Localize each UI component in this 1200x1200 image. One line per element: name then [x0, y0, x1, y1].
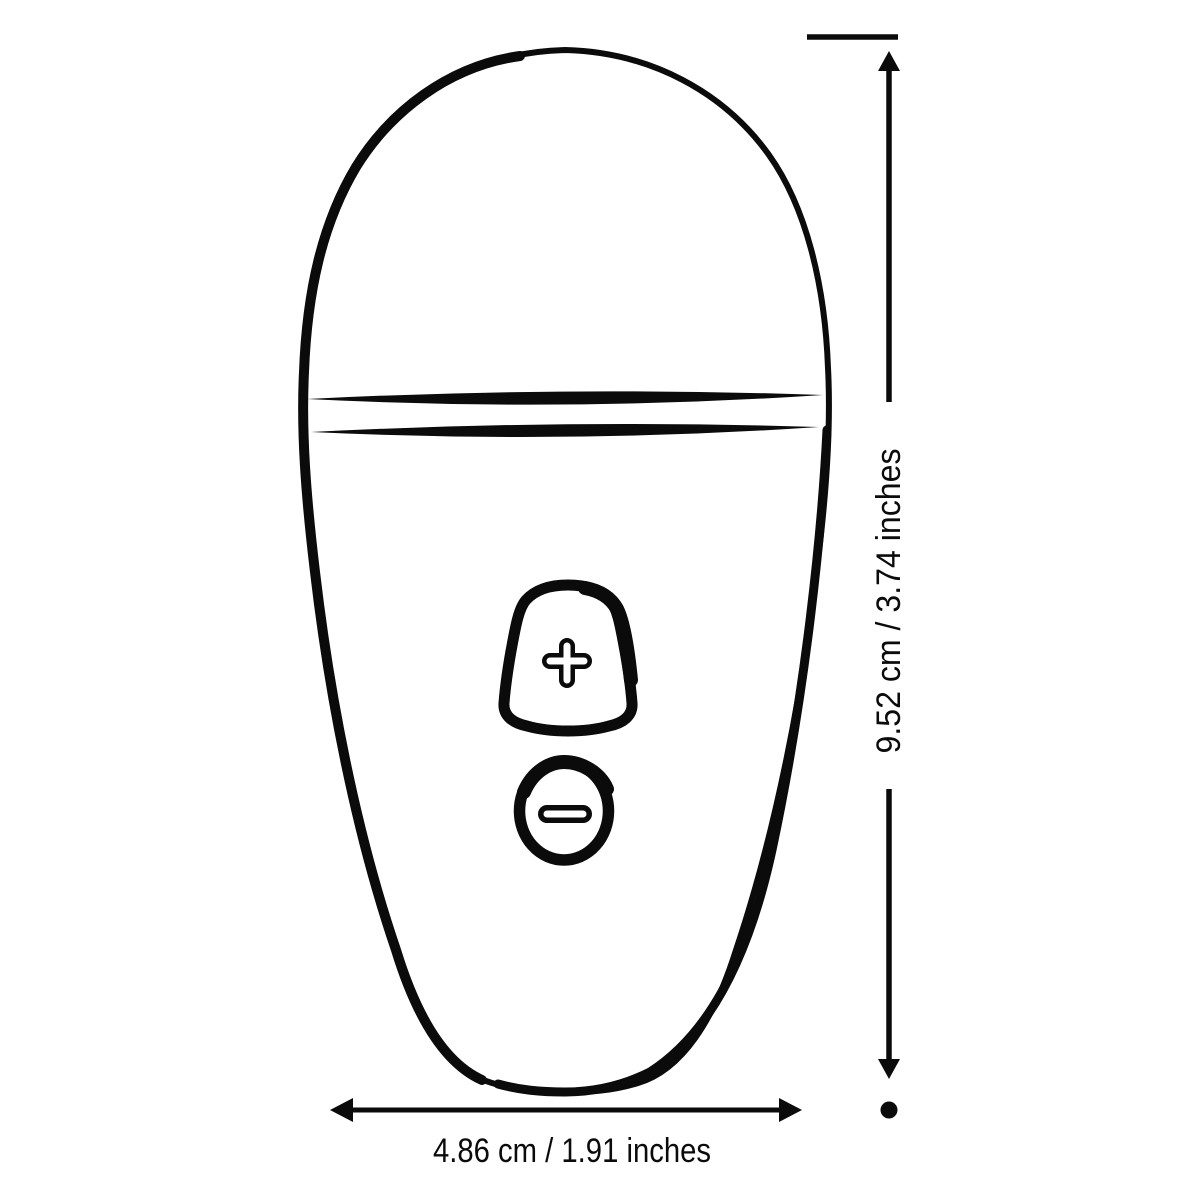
- diagram-canvas: 9.52 cm / 3.74 inches 4.86 cm / 1.91 inc…: [0, 0, 1200, 1200]
- width-dimension-label: 4.86 cm / 1.91 inches: [433, 1132, 711, 1170]
- height-arrow-down-icon: [878, 1059, 900, 1079]
- intensity-up-button: [504, 585, 632, 731]
- height-end-dot: [881, 1102, 898, 1119]
- dimension-diagram: 9.52 cm / 3.74 inches 4.86 cm / 1.91 inc…: [0, 0, 1200, 1200]
- width-arrow-right-icon: [779, 1098, 802, 1122]
- height-dimension-label: 9.52 cm / 3.74 inches: [870, 449, 908, 754]
- width-dimension: 4.86 cm / 1.91 inches: [330, 1098, 802, 1170]
- device-front-view: [302, 50, 829, 1092]
- minus-icon: [538, 805, 592, 823]
- height-dimension: 9.52 cm / 3.74 inches: [807, 37, 908, 1119]
- intensity-down-button: [520, 762, 609, 860]
- height-arrow-up-icon: [878, 51, 900, 71]
